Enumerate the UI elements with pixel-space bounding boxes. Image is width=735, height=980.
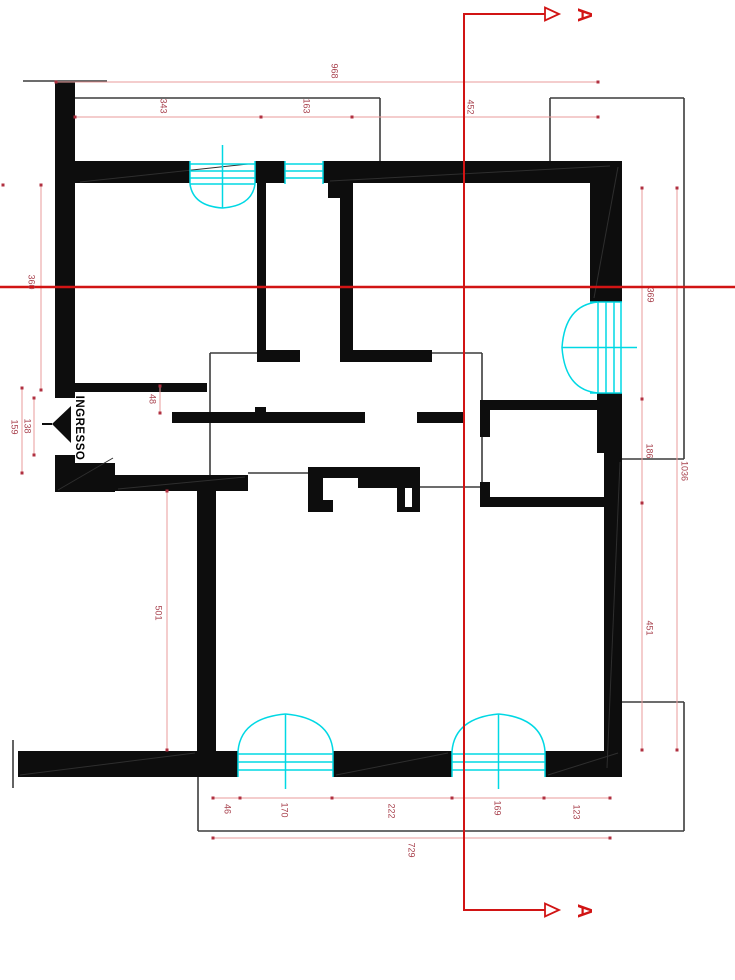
- dim-hall-offset: 48: [148, 394, 157, 404]
- dim-entry-opening: 159: [10, 419, 19, 434]
- entrance-door: [42, 406, 71, 443]
- floorplan-canvas: 968 343 163 452 360 138 159 48 501 46 17…: [0, 0, 735, 980]
- dim-right-a: 369: [646, 287, 655, 302]
- dim-entry-door: 138: [23, 418, 32, 433]
- french-door-bottom-left: [238, 714, 333, 789]
- dim-bottom-e: 123: [572, 804, 581, 819]
- dim-bottom-d: 169: [493, 800, 502, 815]
- dim-top-a: 343: [159, 98, 168, 113]
- room-label-ingresso: INGRESSO: [72, 396, 84, 461]
- dim-bottom-a: 46: [223, 804, 232, 814]
- dim-bottom-c: 222: [387, 803, 396, 818]
- section-letter-top: A: [574, 8, 594, 22]
- dim-top-c: 452: [466, 99, 475, 114]
- window-top-mid: [285, 161, 323, 184]
- dim-right-total: 1036: [680, 461, 689, 481]
- window-top-left: [190, 145, 255, 208]
- dim-top-b: 163: [302, 98, 311, 113]
- dim-right-b: 186: [645, 443, 654, 458]
- section-line: [0, 8, 735, 917]
- dim-bottom-total: 729: [407, 842, 416, 857]
- french-door-bottom-right: [452, 714, 545, 789]
- dim-right-c: 451: [645, 620, 654, 635]
- walls: [18, 82, 622, 777]
- french-window-right: [562, 302, 637, 393]
- section-letter-bottom: A: [574, 904, 594, 918]
- floorplan-drawing: [0, 0, 735, 980]
- dim-left-lower: 501: [154, 605, 163, 620]
- dim-top-total: 968: [330, 63, 339, 78]
- dim-bottom-b: 170: [280, 802, 289, 817]
- dim-left-upper: 360: [27, 274, 36, 289]
